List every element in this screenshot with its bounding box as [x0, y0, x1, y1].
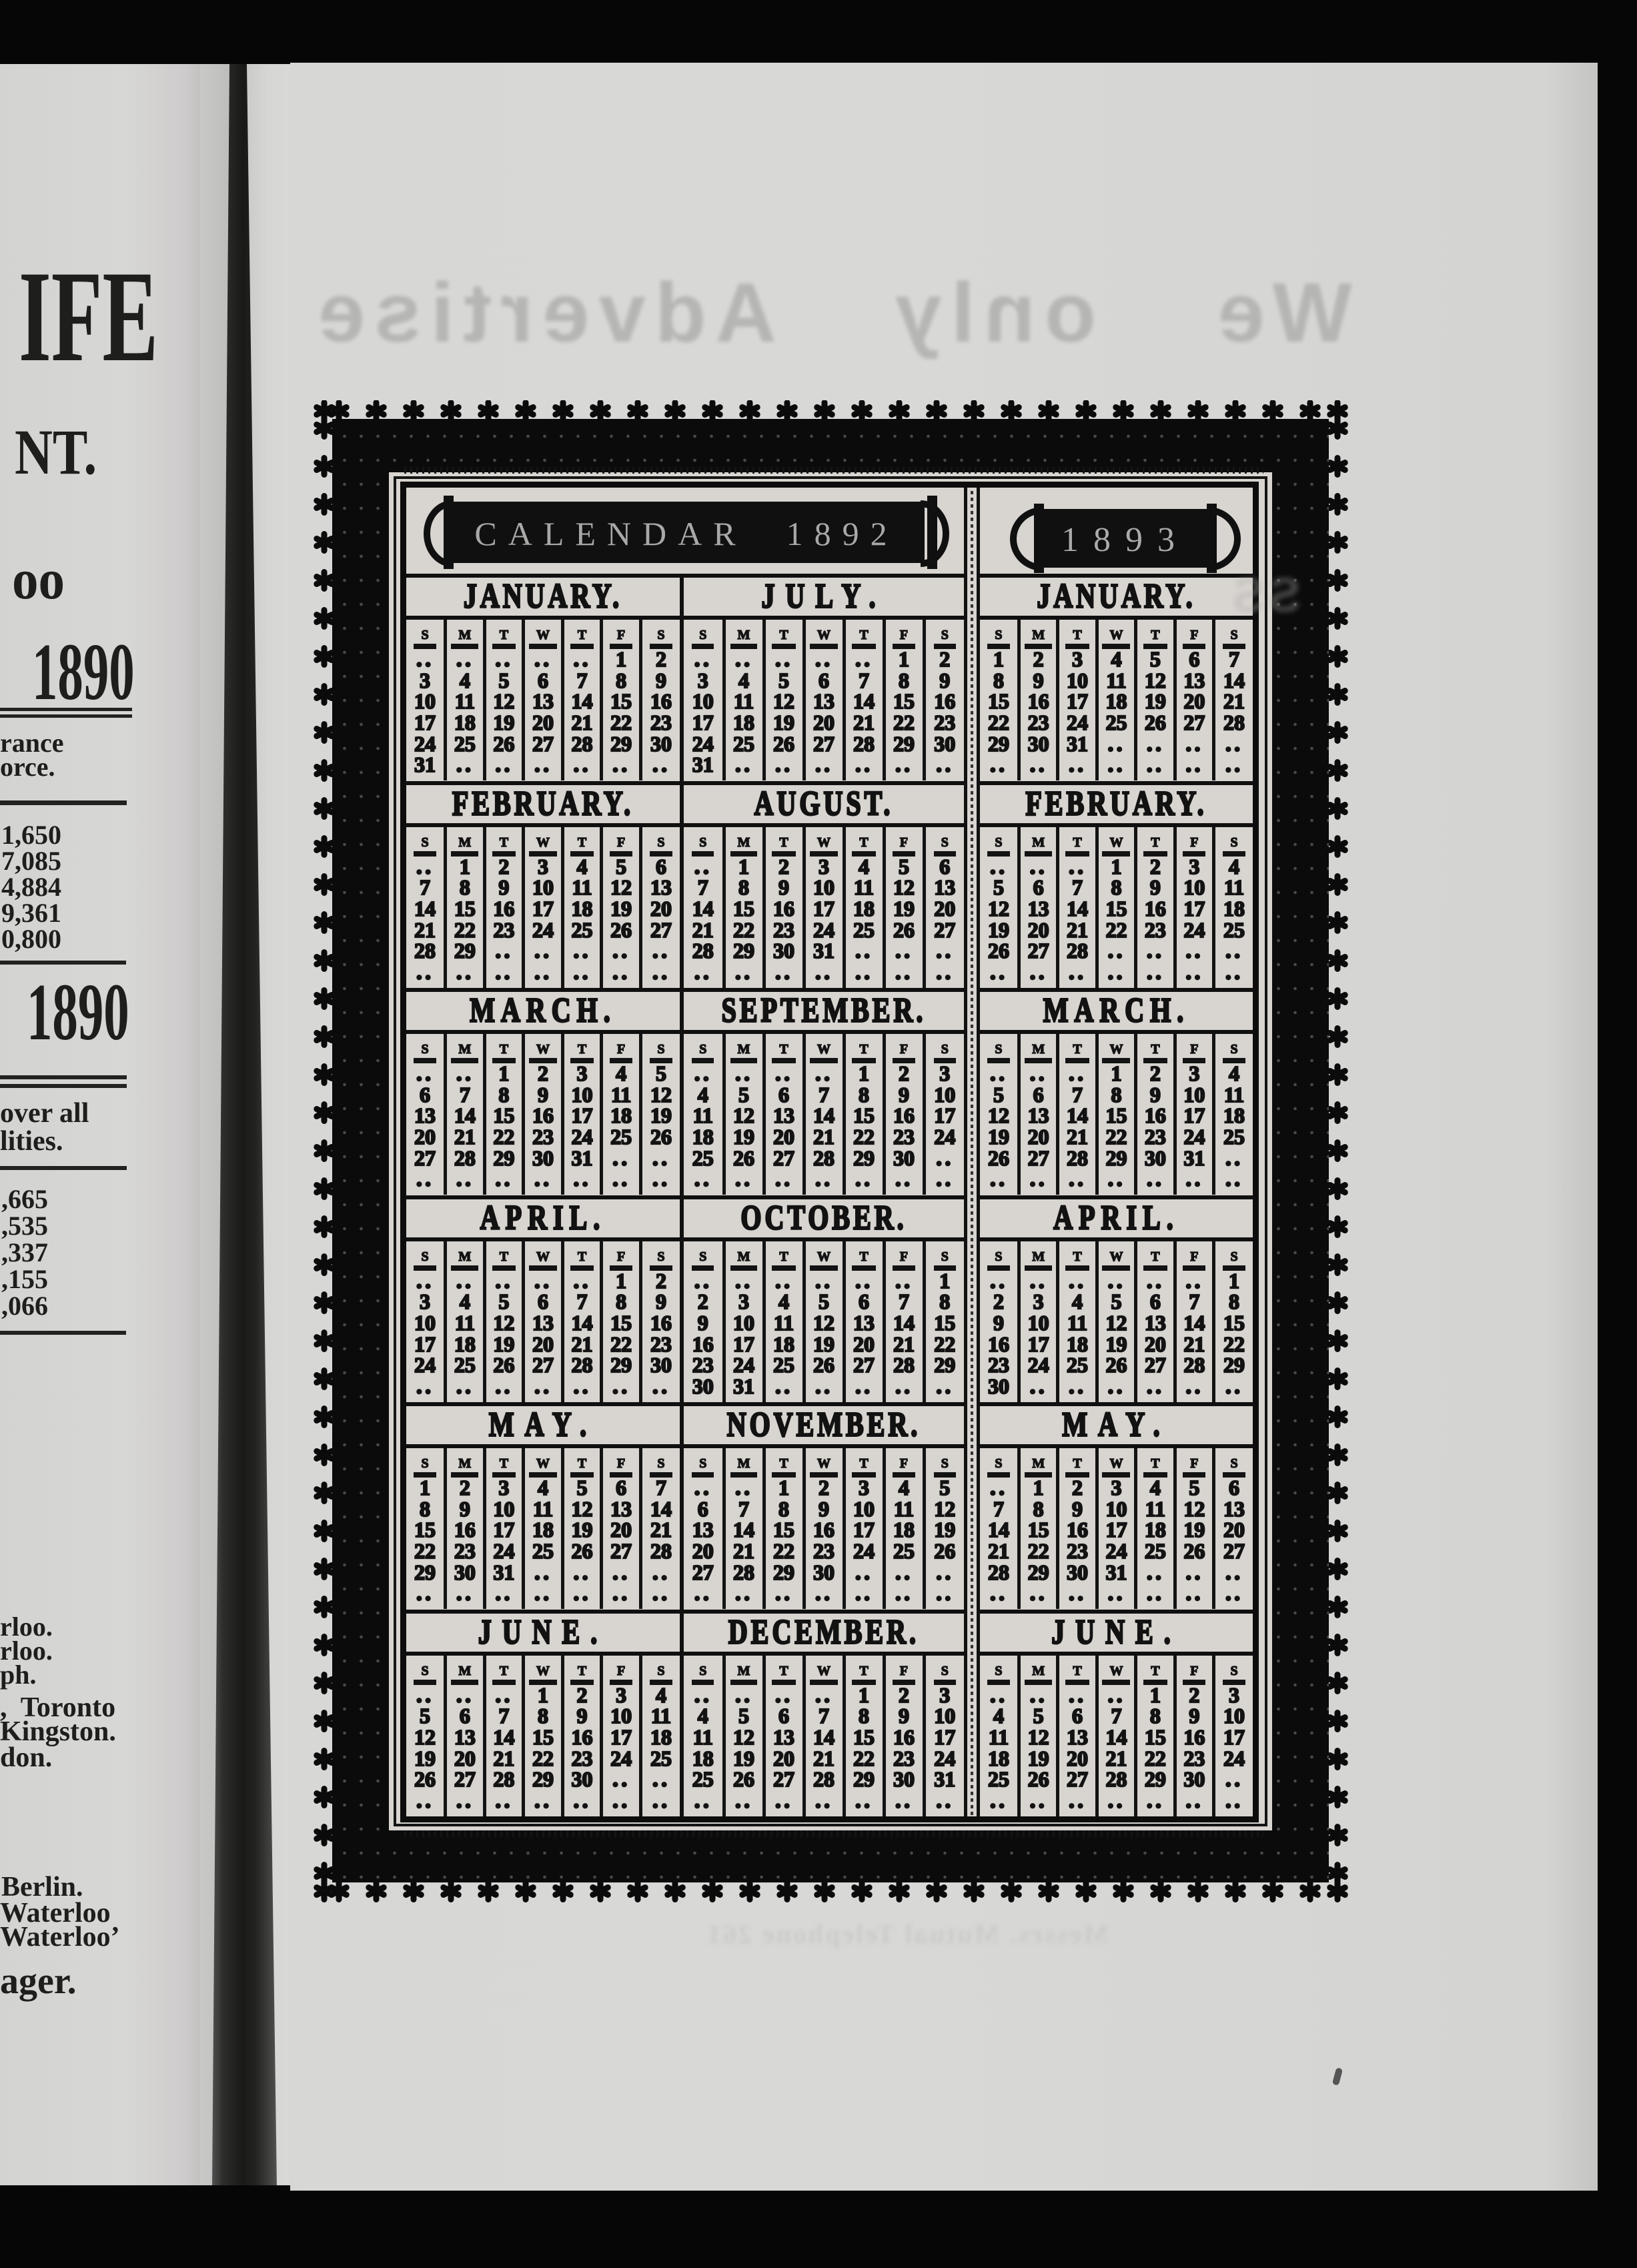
svg-text:1893: 1893: [1061, 521, 1189, 559]
svg-text:CALENDAR 1892: CALENDAR 1892: [474, 515, 898, 552]
